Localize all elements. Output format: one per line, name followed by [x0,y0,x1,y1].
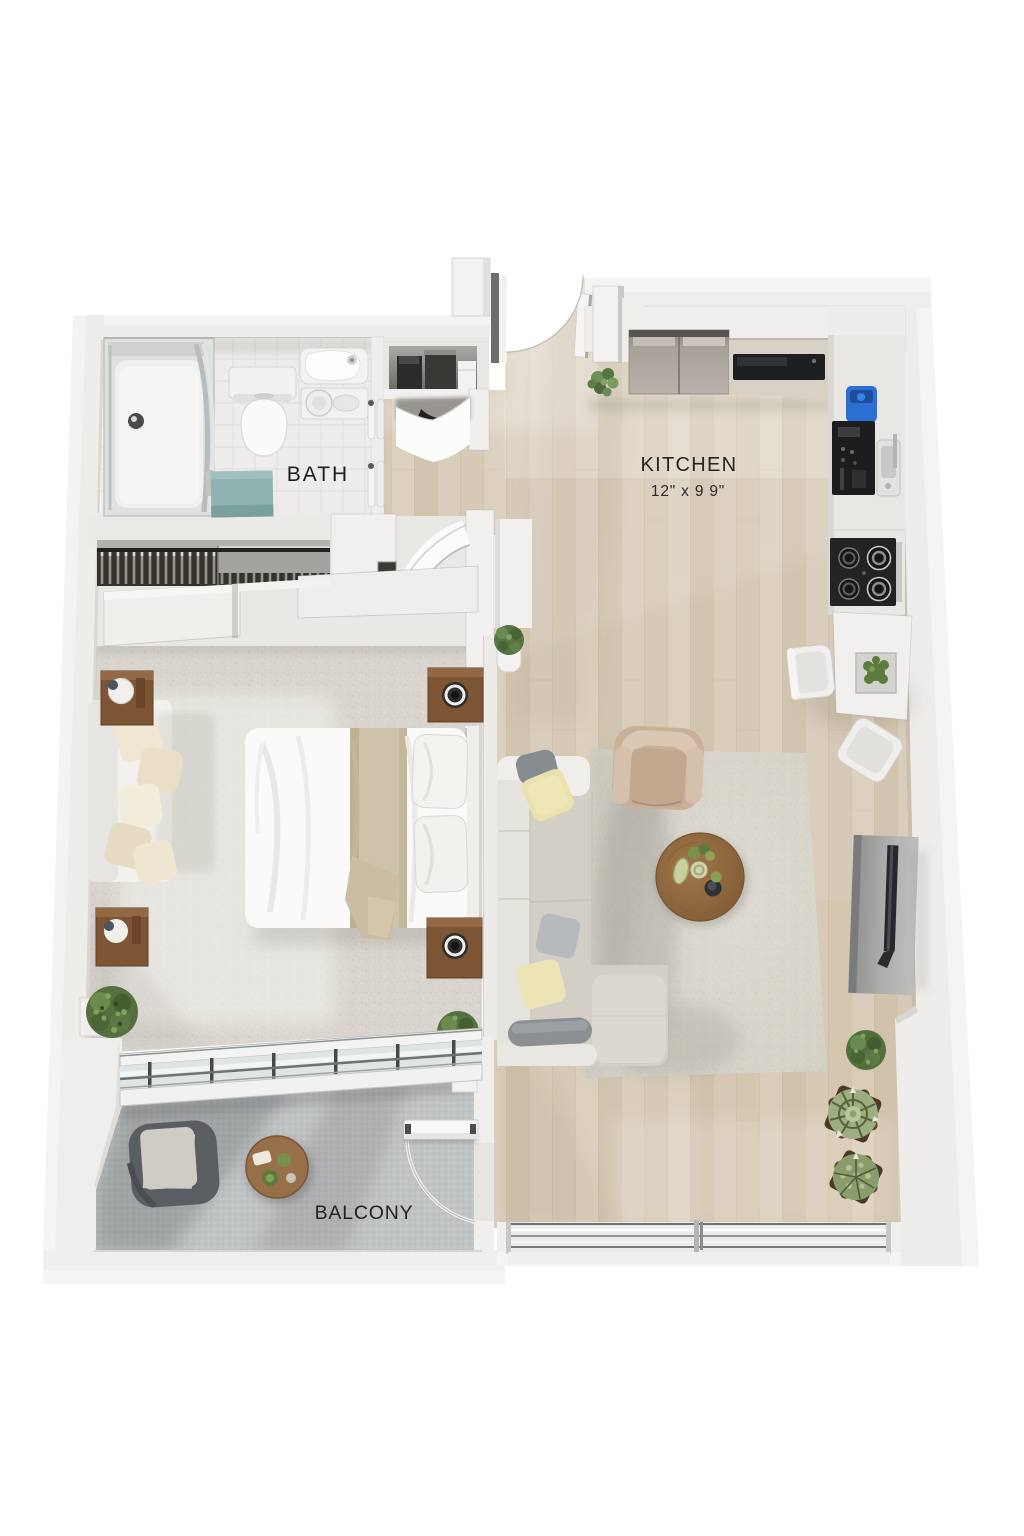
svg-text:12" x 9 9": 12" x 9 9" [651,483,725,500]
svg-text:BATH: BATH [287,463,349,486]
svg-text:BALCONY: BALCONY [315,1202,414,1224]
svg-text:KITCHEN: KITCHEN [641,454,738,476]
